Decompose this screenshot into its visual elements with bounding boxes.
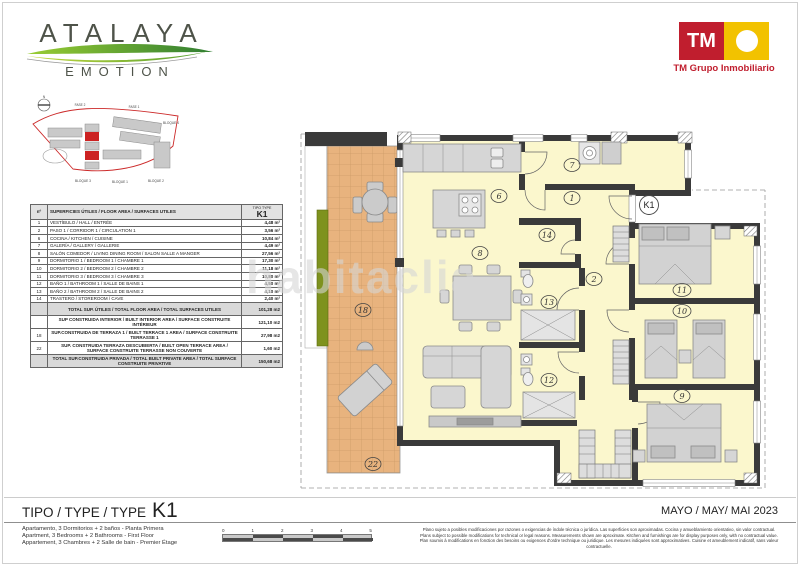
summary-row: TOTAL SUP. ÚTILES / TOTAL FLOOR AREA / T… — [31, 303, 283, 316]
highlighted-unit-upper — [85, 132, 99, 141]
tm-company-name: TM Grupo Inmobiliario — [668, 63, 780, 74]
table-row: 8 SALÓN COMEDOR / LIVING DINING ROOM / S… — [31, 250, 283, 258]
summary-number-cell — [31, 355, 48, 368]
terrace — [305, 132, 400, 473]
svg-text:2: 2 — [590, 275, 596, 284]
table-row: 11 DORMITORIO 3 / BEDROOM 3 / CHAMBRE 3 … — [31, 272, 283, 280]
room-number-cell: 11 — [31, 272, 48, 280]
description-line: Apartment, 3 Bedrooms + 2 Bathrooms - Fi… — [22, 533, 177, 540]
summary-area-cell: 121,10 m2 — [242, 316, 283, 329]
col-label-header: SUPERFICIES ÚTILES / FLOOR AREA / SURFAC… — [48, 205, 242, 220]
room-area-cell: 17,30 m² — [242, 257, 283, 265]
table-row: 14 TRASTERO / STOREROOM / CAVE 2,40 m² — [31, 295, 283, 303]
table-row: 2 PASO 1 / CORRIDOR 1 / CIRCULATION 1 3,… — [31, 227, 283, 235]
room-area-cell: 10,80 m² — [242, 272, 283, 280]
legal-disclaimer: Plano sujeto a posibles modificaciones p… — [408, 527, 790, 549]
col-number-header: nº — [31, 205, 48, 220]
summary-area-cell: 1,60 m2 — [242, 342, 283, 355]
svg-text:11: 11 — [677, 286, 687, 295]
areas-table: nº SUPERFICIES ÚTILES / FLOOR AREA / SUR… — [30, 204, 283, 368]
planter-strip — [317, 210, 328, 346]
plan-title: TIPO / TYPE / TYPE K1 — [22, 499, 178, 523]
floorplan-sheet: { "header": { "brand": {"name": "ATALAYA… — [0, 0, 800, 566]
summary-row: 22 SUP. CONSTRUIDA TERRAZA DESCUBIERTA /… — [31, 342, 283, 355]
terrace-door-handle-2 — [395, 258, 404, 267]
room-area-cell: 4,50 m² — [242, 280, 283, 288]
disclaimer-line: Plan soumis à modifications en fonction … — [408, 538, 790, 549]
summary-label-cell: TOTAL SUP.CONSTRUIDA PRIVADA / TOTAL BUI… — [48, 355, 242, 368]
ottoman — [431, 386, 465, 408]
room-number-cell: 1 — [31, 219, 48, 227]
summary-number-cell: 22 — [31, 342, 48, 355]
room-number-cell: 14 — [31, 295, 48, 303]
fase1-label: FASE 1 — [129, 105, 140, 109]
room-number-cell: 12 — [31, 280, 48, 288]
room-area-cell: 4,49 m² — [242, 242, 283, 250]
svg-text:22: 22 — [367, 460, 378, 469]
table-row: 9 DORMITORIO 1 / BEDROOM 1 / CHAMBRE 1 1… — [31, 257, 283, 265]
description-line: Apartamento, 3 Dormitorios + 2 baños - P… — [22, 526, 177, 533]
unit-type-label: K1 — [640, 196, 659, 215]
highlighted-unit-lower — [85, 151, 99, 160]
room-area-cell: 4,48 m² — [242, 219, 283, 227]
summary-label-cell: SUP. CONSTRUIDA TERRAZA DESCUBIERTA / BU… — [48, 342, 242, 355]
col-type-header: TIPO TYPE K1 — [242, 205, 283, 220]
svg-text:9: 9 — [679, 392, 684, 401]
atalaya-emotion-logo: ATALAYA EMOTION — [25, 10, 215, 86]
room-number-cell: 10 — [31, 265, 48, 273]
summary-label-cell: TOTAL SUP. ÚTILES / TOTAL FLOOR AREA / T… — [48, 303, 242, 316]
svg-text:1: 1 — [569, 194, 574, 203]
description-line: Appartement, 3 Chambres + 2 Salle de bai… — [22, 540, 177, 547]
room-label-cell: DORMITORIO 3 / BEDROOM 3 / CHAMBRE 3 — [48, 272, 242, 280]
room-number-cell: 8 — [31, 250, 48, 258]
bloque1-label: BLOQUE 1 — [112, 180, 128, 184]
summary-area-cell: 27,98 m2 — [242, 329, 283, 342]
room-label-cell: GALERÍA / GALLERY / GALLERIE — [48, 242, 242, 250]
svg-text:6: 6 — [496, 192, 501, 201]
summary-number-cell: 18 — [31, 329, 48, 342]
svg-text:14: 14 — [542, 231, 552, 240]
fase2-label: FASE 2 — [75, 103, 86, 107]
svg-text:18: 18 — [358, 306, 368, 315]
table-row: 7 GALERÍA / GALLERY / GALLERIE 4,49 m² — [31, 242, 283, 250]
svg-text:13: 13 — [544, 298, 554, 307]
summary-number-cell — [31, 303, 48, 316]
table-row: 1 VESTÍBULO / HALL / ENTRÉE 4,48 m² — [31, 219, 283, 227]
title-unit: K1 — [152, 499, 178, 523]
room-label-cell: COCINA / KITCHEN / CUISINE — [48, 235, 242, 243]
site-location-plan: N FASE 2 FASE 1 BLOQUE 3 BLOQUE 1 BLOQUE… — [28, 94, 183, 194]
brand-name-text: ATALAYA — [39, 18, 204, 48]
scale-bar: 0 1 2 3 4 5 — [222, 528, 372, 542]
disclaimer-line: Plano sujeto a posibles modificaciones p… — [408, 527, 790, 533]
brand-subname-text: EMOTION — [65, 64, 175, 79]
summary-label-cell: SUP CONSTRUIDA INTERIOR / BUILT INTERIOR… — [48, 316, 242, 329]
areas-table-header: nº SUPERFICIES ÚTILES / FLOOR AREA / SUR… — [31, 205, 283, 220]
toilet-bath1 — [523, 275, 533, 288]
bloque4-label: BLOQUE 4 — [163, 121, 179, 125]
table-row: 10 DORMITORIO 2 / BEDROOM 2 / CHAMBRE 2 … — [31, 265, 283, 273]
kitchen-sink — [491, 148, 503, 157]
floor-plan: 1 2 6 7 8 9 10 11 12 13 14 18 22 K1 — [295, 98, 775, 498]
room-label-cell: TRASTERO / STOREROOM / CAVE — [48, 295, 242, 303]
type-value: K1 — [244, 210, 280, 219]
room-area-cell: 27,56 m² — [242, 250, 283, 258]
svg-text:K1: K1 — [643, 200, 654, 210]
summary-row: TOTAL SUP.CONSTRUIDA PRIVADA / TOTAL BUI… — [31, 355, 283, 368]
tm-yellow-square — [724, 22, 769, 60]
footer-divider-top — [4, 497, 796, 498]
room-label-cell: SALÓN COMEDOR / LIVING DINING ROOM / SAL… — [48, 250, 242, 258]
room-label-cell: VESTÍBULO / HALL / ENTRÉE — [48, 219, 242, 227]
summary-label-cell: SUP.CONSTRUIDA DE TERRAZA 1 / BUILT TERR… — [48, 329, 242, 342]
summary-area-cell: 150,68 m2 — [242, 355, 283, 368]
room-number-cell: 9 — [31, 257, 48, 265]
terrace-top-wall — [305, 132, 387, 146]
room-area-cell: 3,56 m² — [242, 227, 283, 235]
tm-logo-block: TM TM Grupo Inmobiliario — [668, 22, 780, 74]
room-number-cell: 6 — [31, 235, 48, 243]
scale-track — [222, 534, 372, 542]
bloque2-label: BLOQUE 2 — [148, 179, 164, 183]
room-number-cell: 13 — [31, 288, 48, 296]
room-label-cell: BAÑO 1 / BATHROOM 1 / SALLE DE BAINS 1 — [48, 280, 242, 288]
table-row: 13 BAÑO 2 / BATHROOM 2 / SALLE DE BAINS … — [31, 288, 283, 296]
svg-text:N: N — [43, 95, 46, 99]
toilet-bath2 — [523, 373, 533, 386]
table-row: 6 COCINA / KITCHEN / CUISINE 10,84 m² — [31, 235, 283, 243]
cooktop — [459, 194, 481, 216]
room-area-cell: 2,40 m² — [242, 295, 283, 303]
svg-text:12: 12 — [544, 376, 554, 385]
summary-row: SUP CONSTRUIDA INTERIOR / BUILT INTERIOR… — [31, 316, 283, 329]
room-area-cell: 10,84 m² — [242, 235, 283, 243]
apartment-descriptions: Apartamento, 3 Dormitorios + 2 baños - P… — [22, 526, 177, 546]
room-label-cell: PASO 1 / CORRIDOR 1 / CIRCULATION 1 — [48, 227, 242, 235]
kitchen-counter — [403, 144, 521, 172]
north-compass-icon: N — [38, 95, 50, 111]
room-label-cell: DORMITORIO 2 / BEDROOM 2 / CHAMBRE 2 — [48, 265, 242, 273]
summary-area-cell: 101,28 m2 — [242, 303, 283, 316]
dining-table — [453, 276, 511, 320]
room-label-cell: BAÑO 2 / BATHROOM 2 / SALLE DE BAINS 2 — [48, 288, 242, 296]
summary-number-cell — [31, 316, 48, 329]
svg-text:8: 8 — [477, 249, 482, 258]
room-area-cell: 4,10 m² — [242, 288, 283, 296]
room-number-cell: 2 — [31, 227, 48, 235]
bloque3-label: BLOQUE 3 — [75, 179, 91, 183]
tm-initials-square: TM — [679, 22, 724, 60]
summary-row: 18 SUP.CONSTRUIDA DE TERRAZA 1 / BUILT T… — [31, 329, 283, 342]
room-area-cell: 11,18 m² — [242, 265, 283, 273]
site-pool — [43, 149, 67, 163]
tm-circle-icon — [736, 30, 758, 52]
title-prefix: TIPO / TYPE / TYPE — [22, 505, 146, 520]
table-row: 12 BAÑO 1 / BATHROOM 1 / SALLE DE BAINS … — [31, 280, 283, 288]
room-label-cell: DORMITORIO 1 / BEDROOM 1 / CHAMBRE 1 — [48, 257, 242, 265]
svg-text:10: 10 — [677, 307, 687, 316]
room-number-cell: 7 — [31, 242, 48, 250]
plan-date: MAYO / MAY/ MAI 2023 — [661, 505, 778, 517]
